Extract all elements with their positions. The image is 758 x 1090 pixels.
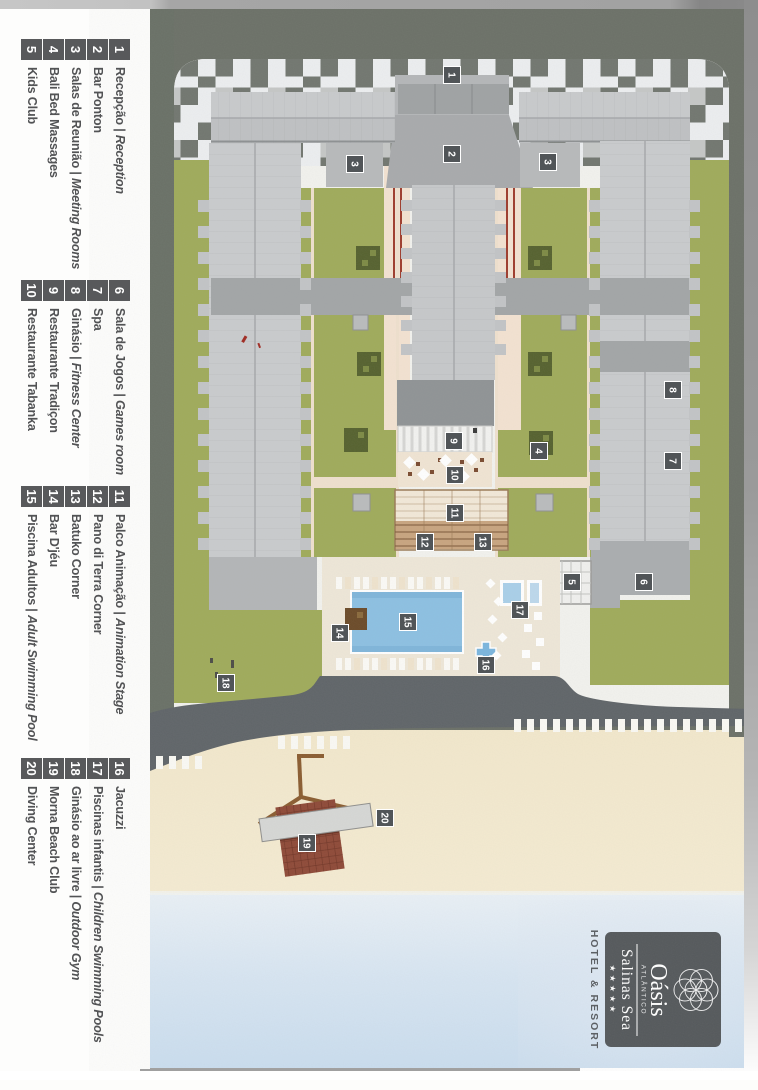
svg-text:6: 6 bbox=[637, 579, 648, 585]
svg-text:3: 3 bbox=[541, 159, 552, 165]
svg-text:19: 19 bbox=[300, 837, 311, 849]
svg-text:10: 10 bbox=[448, 469, 459, 481]
svg-text:5: 5 bbox=[565, 579, 576, 585]
svg-text:17: 17 bbox=[513, 604, 524, 616]
svg-text:9: 9 bbox=[447, 438, 458, 444]
svg-text:20: 20 bbox=[378, 812, 389, 824]
svg-text:8: 8 bbox=[666, 387, 677, 393]
svg-text:16: 16 bbox=[479, 659, 490, 671]
svg-text:1: 1 bbox=[445, 72, 456, 78]
svg-text:11: 11 bbox=[448, 508, 459, 519]
svg-text:18: 18 bbox=[219, 677, 230, 689]
svg-text:2: 2 bbox=[445, 151, 456, 157]
svg-text:7: 7 bbox=[666, 458, 677, 464]
svg-text:12: 12 bbox=[418, 536, 429, 548]
svg-text:15: 15 bbox=[401, 616, 412, 628]
svg-text:14: 14 bbox=[333, 627, 344, 639]
svg-text:4: 4 bbox=[532, 448, 543, 454]
svg-text:13: 13 bbox=[476, 536, 487, 548]
svg-text:3: 3 bbox=[348, 161, 359, 167]
